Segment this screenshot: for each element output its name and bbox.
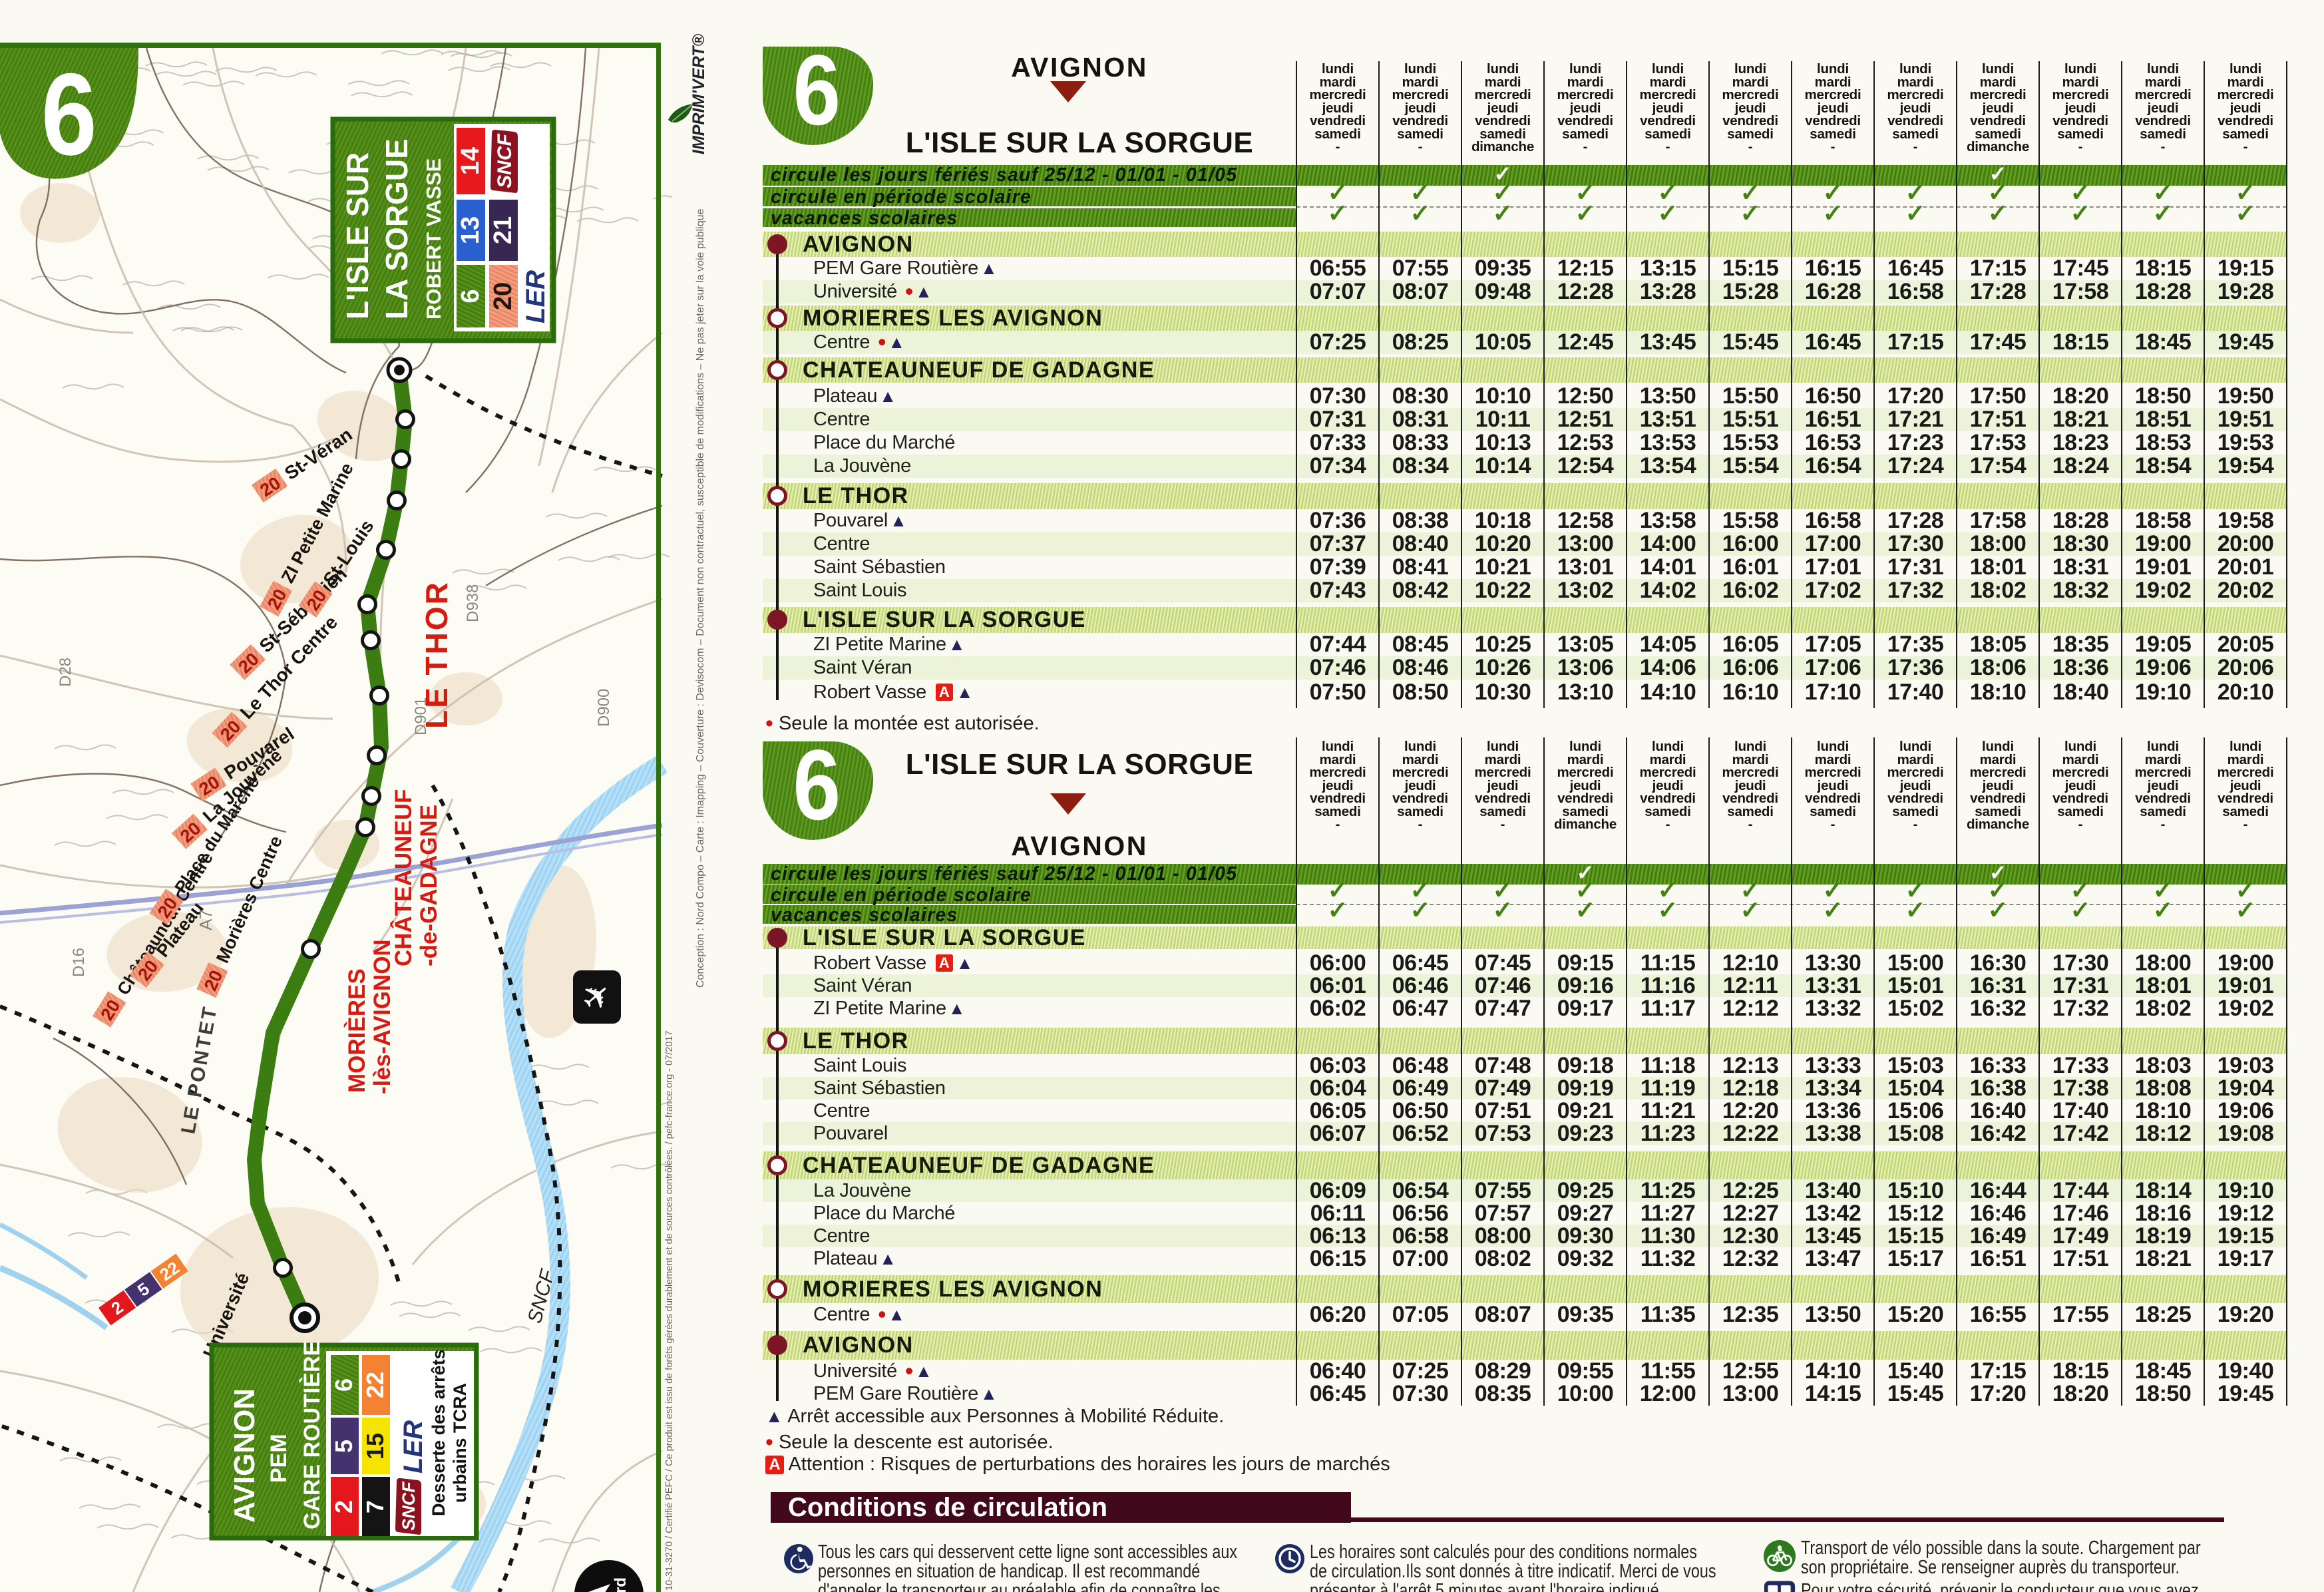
svg-text:Nord: Nord: [612, 1577, 630, 1592]
svg-text:D938: D938: [464, 584, 482, 622]
svg-text:GARE ROUTIÈRE: GARE ROUTIÈRE: [299, 1341, 325, 1529]
svg-text:D900: D900: [595, 689, 613, 727]
svg-text:2: 2: [330, 1500, 357, 1513]
svg-text:6: 6: [41, 49, 97, 179]
svg-text:14: 14: [457, 147, 484, 175]
svg-text:A7: A7: [196, 909, 216, 930]
svg-text:PEM: PEM: [266, 1434, 291, 1483]
svg-text:D16: D16: [70, 948, 88, 977]
svg-text:5: 5: [330, 1440, 357, 1453]
svg-text:22: 22: [361, 1372, 389, 1398]
svg-text:ROBERT VASSE: ROBERT VASSE: [422, 158, 445, 319]
svg-text:AVIGNON: AVIGNON: [228, 1388, 261, 1523]
svg-text:D901: D901: [412, 697, 430, 735]
svg-text:D28: D28: [57, 658, 75, 687]
svg-text:L'ISLE SUR: L'ISLE SUR: [340, 152, 375, 319]
svg-text:21: 21: [489, 216, 517, 244]
svg-text:LA SORGUE: LA SORGUE: [379, 138, 414, 319]
svg-text:Desserte des arrêts: Desserte des arrêts: [429, 1349, 449, 1516]
svg-text:-de-GADAGNE: -de-GADAGNE: [416, 805, 442, 966]
svg-text:SNCF: SNCF: [494, 133, 516, 188]
svg-text:20: 20: [489, 282, 517, 310]
svg-text:LER: LER: [399, 1420, 428, 1474]
svg-text:6: 6: [457, 289, 484, 303]
svg-text:SNCF: SNCF: [399, 1481, 419, 1531]
svg-text:-lès-AVIGNON: -lès-AVIGNON: [369, 939, 395, 1094]
svg-text:MORIÈRES: MORIÈRES: [343, 968, 370, 1093]
svg-text:6: 6: [330, 1378, 357, 1392]
svg-text:13: 13: [457, 216, 484, 244]
svg-text:15: 15: [361, 1433, 389, 1460]
svg-text:LER: LER: [521, 270, 550, 323]
svg-text:urbains TCRA: urbains TCRA: [450, 1383, 470, 1503]
svg-text:7: 7: [361, 1500, 389, 1513]
